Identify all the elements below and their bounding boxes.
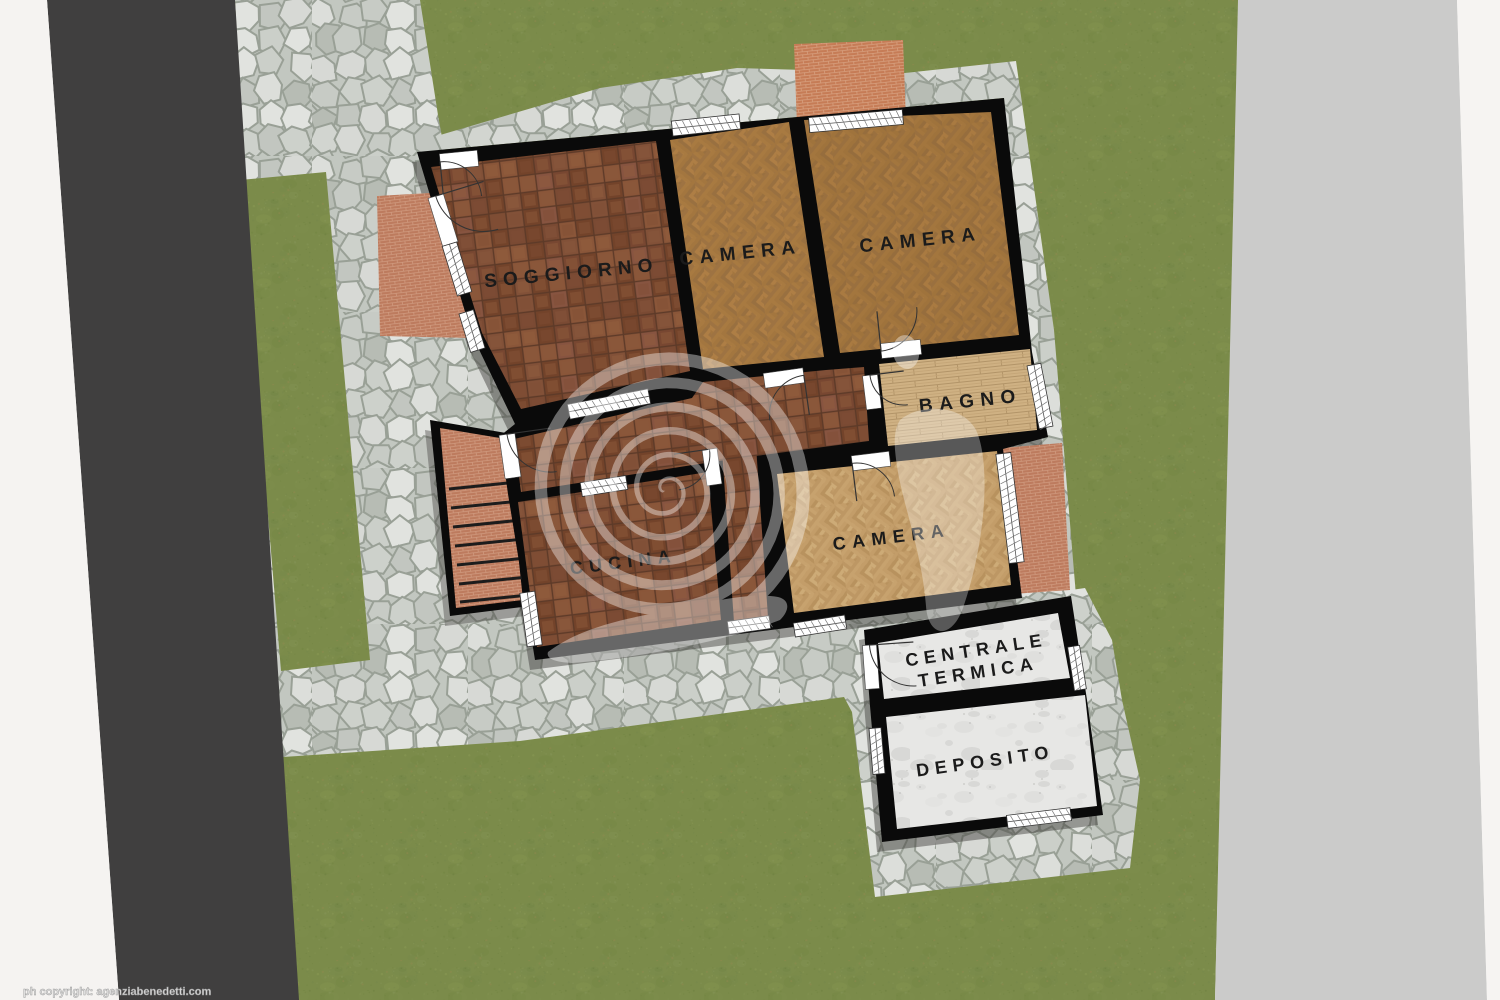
svg-text:ph copyright: agenziabenedetti: ph copyright: agenziabenedetti.com (23, 986, 211, 998)
